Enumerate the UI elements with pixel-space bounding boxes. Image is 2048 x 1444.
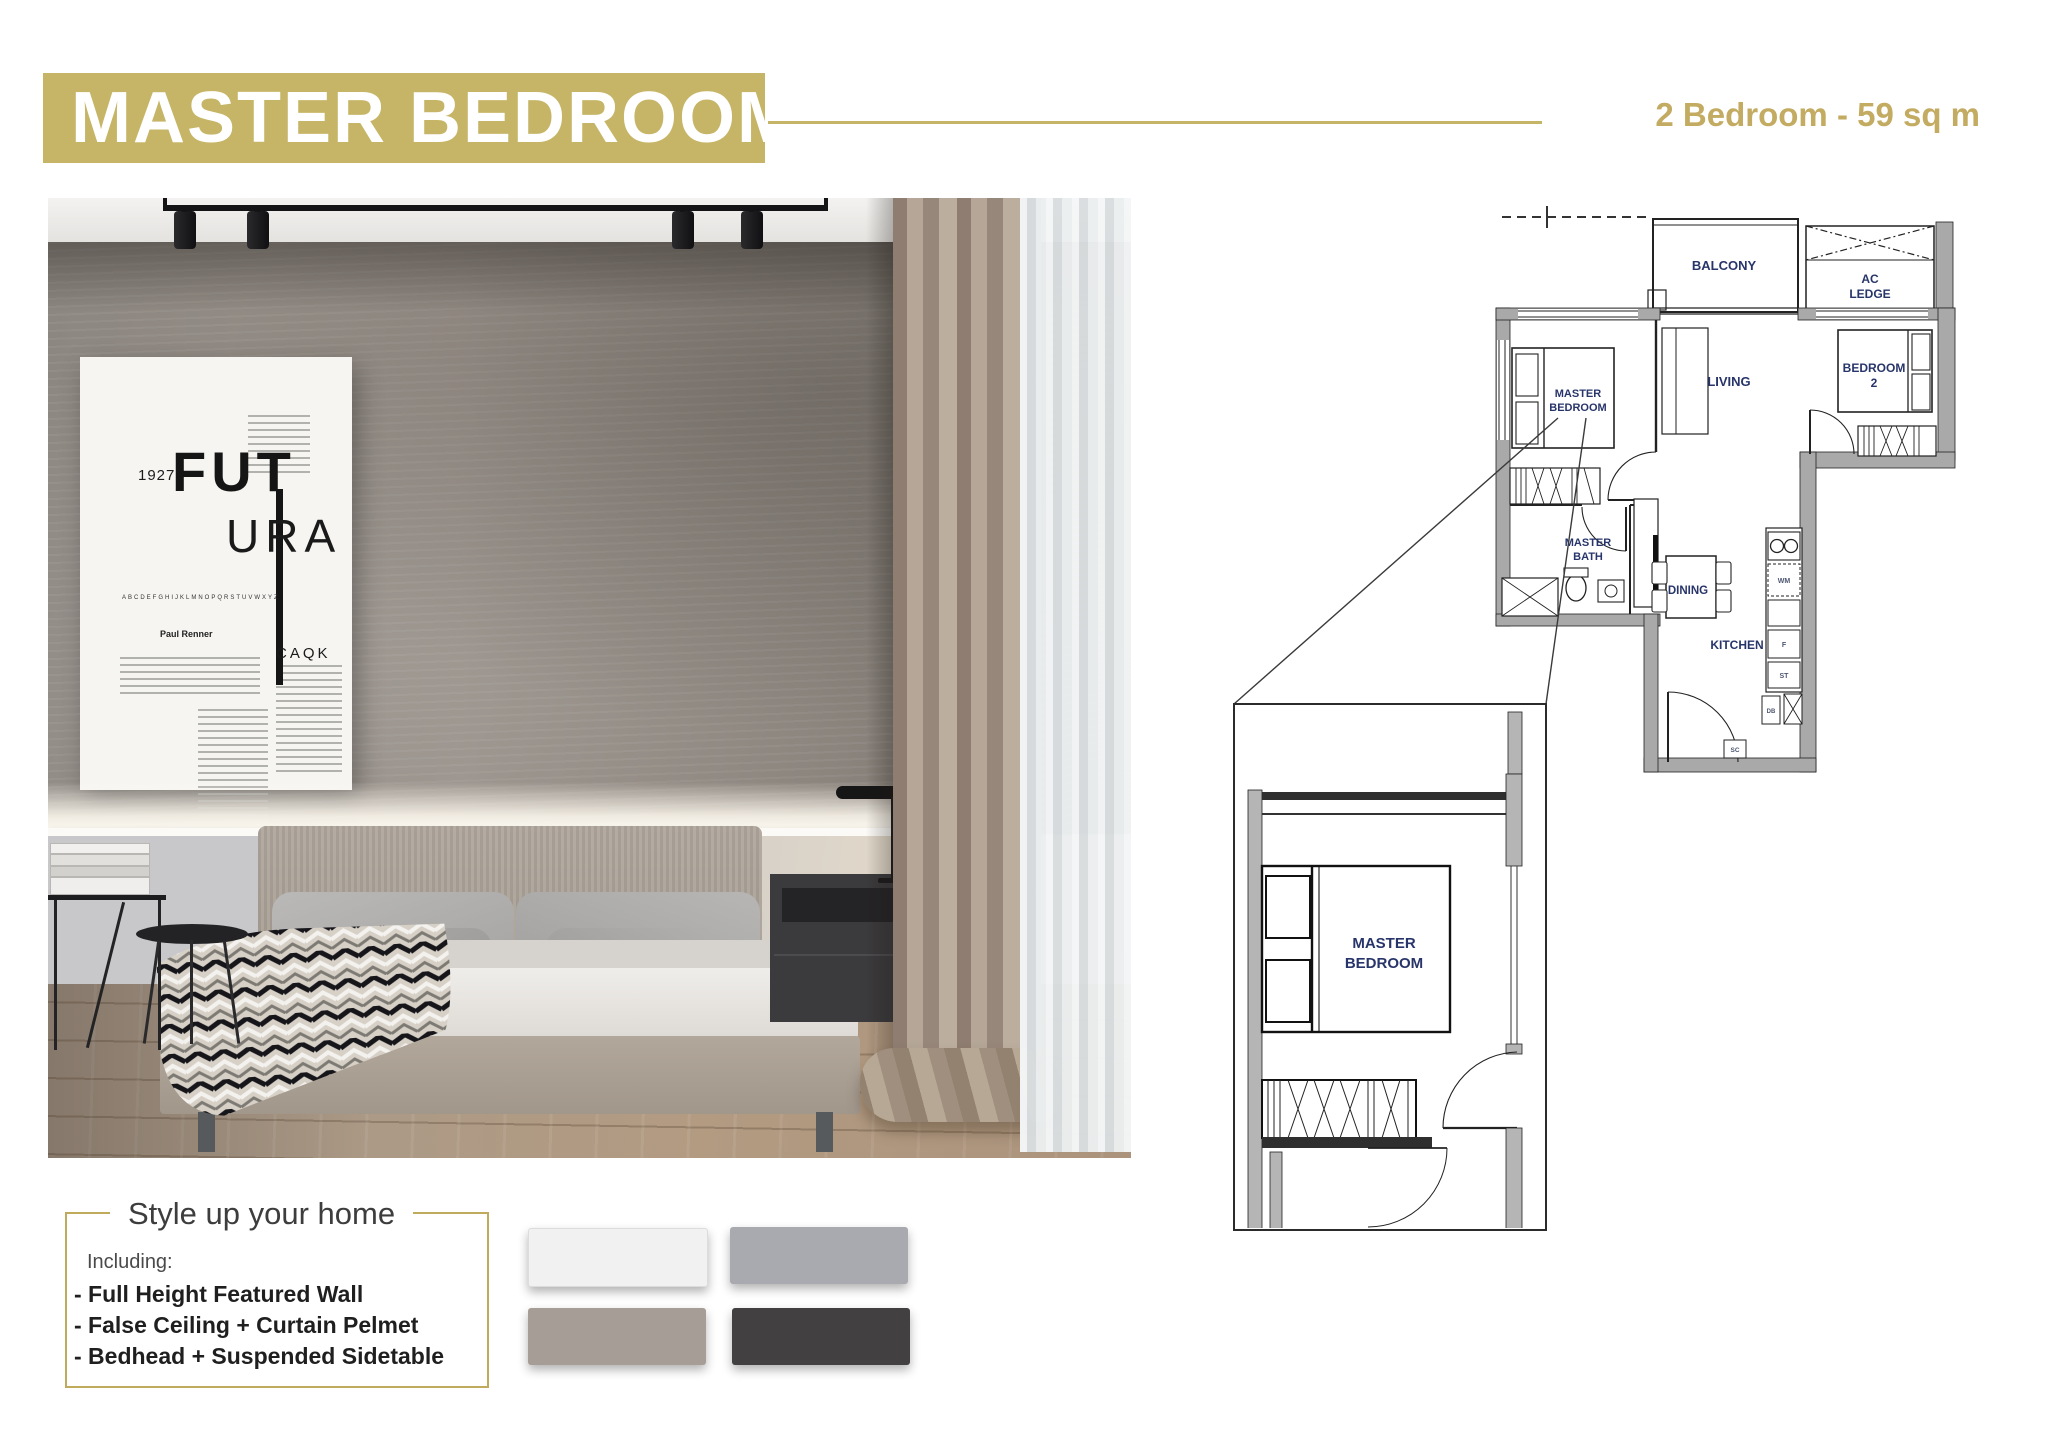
room-label-ac: AC	[1861, 272, 1879, 286]
stool-leg	[190, 940, 193, 1044]
poster-alphabet: ABCDEFGHIJKLMNOPQRSTUVWXYZ	[122, 595, 280, 601]
room-label-bedroom2-num: 2	[1871, 376, 1878, 390]
spotlight-icon	[247, 211, 269, 249]
style-panel-title: Style up your home	[110, 1196, 413, 1232]
room-label-master1: MASTER	[1555, 388, 1602, 400]
style-items: - Full Height Featured Wall - False Ceil…	[74, 1279, 444, 1372]
color-swatch-charcoal	[732, 1308, 910, 1365]
title-divider-line	[768, 121, 1542, 124]
room-label-bath2: BATH	[1573, 551, 1603, 563]
detail-label-bedroom: BEDROOM	[1345, 955, 1423, 972]
poster-letters: CAQK	[276, 645, 331, 662]
poster-word-bottom: URA	[226, 509, 341, 563]
room-label-ledge: LEDGE	[1849, 287, 1890, 301]
room-label-kitchen: KITCHEN	[1710, 638, 1763, 652]
style-item: - Full Height Featured Wall	[74, 1279, 444, 1310]
rail-mount	[163, 198, 167, 208]
room-label-dining: DINING	[1668, 585, 1708, 597]
drape-curtain	[893, 198, 1041, 1116]
poster-microtext	[120, 657, 260, 699]
detail-label-master: MASTER	[1352, 935, 1416, 952]
appliance-label-wm: WM	[1778, 578, 1791, 585]
side-table-top	[48, 895, 166, 900]
master-bedroom-photo: 1927 FUT URA ABCDEFGHIJKLMNOPQRSTUVWXYZ …	[48, 198, 1131, 1158]
style-item: - Bedhead + Suspended Sidetable	[74, 1341, 444, 1372]
brochure-page: { "header": { "title": "MASTER BEDROOM",…	[0, 0, 2048, 1444]
appliance-label-db: DB	[1767, 709, 1776, 715]
plan-boundary-dashes	[1502, 206, 1646, 228]
bed-leg	[816, 1112, 833, 1152]
floor-plan: BALCONY AC LEDGE LIVING BEDROOM 2 MASTER…	[1195, 190, 2005, 1260]
sheer-curtain	[1020, 198, 1131, 1152]
color-swatch-offwhite	[528, 1228, 708, 1287]
poster-microtext	[276, 665, 342, 775]
rail-mount	[824, 198, 828, 208]
side-table-leg	[54, 900, 57, 1050]
appliance-label-st: ST	[1780, 673, 1790, 680]
room-label-balcony: BALCONY	[1692, 258, 1757, 273]
spotlight-icon	[672, 211, 694, 249]
appliance-label-f: F	[1782, 642, 1787, 649]
room-label-bath1: MASTER	[1565, 537, 1612, 549]
appliance-label-sc: SC	[1730, 747, 1739, 754]
room-label-master2: BEDROOM	[1549, 402, 1606, 414]
book-stack	[50, 843, 152, 895]
room-label-living: LIVING	[1707, 374, 1750, 389]
poster-year: 1927	[138, 467, 175, 484]
including-label: Including:	[87, 1251, 173, 1274]
spotlight-icon	[174, 211, 196, 249]
color-swatch-taupe	[528, 1308, 706, 1365]
room-label-bedroom2: BEDROOM	[1843, 361, 1906, 375]
futura-poster: 1927 FUT URA ABCDEFGHIJKLMNOPQRSTUVWXYZ …	[80, 357, 352, 790]
unit-type-label: 2 Bedroom - 59 sq m	[1655, 96, 1980, 134]
spotlight-icon	[741, 211, 763, 249]
color-swatch-lightgray	[730, 1227, 908, 1284]
detail-leader-lines	[1234, 418, 1586, 704]
poster-designer: Paul Renner	[160, 629, 213, 639]
side-table-leg	[158, 900, 161, 1050]
page-title: MASTER BEDROOM	[71, 77, 799, 159]
style-item: - False Ceiling + Curtain Pelmet	[74, 1310, 444, 1341]
title-banner: MASTER BEDROOM	[43, 73, 765, 163]
